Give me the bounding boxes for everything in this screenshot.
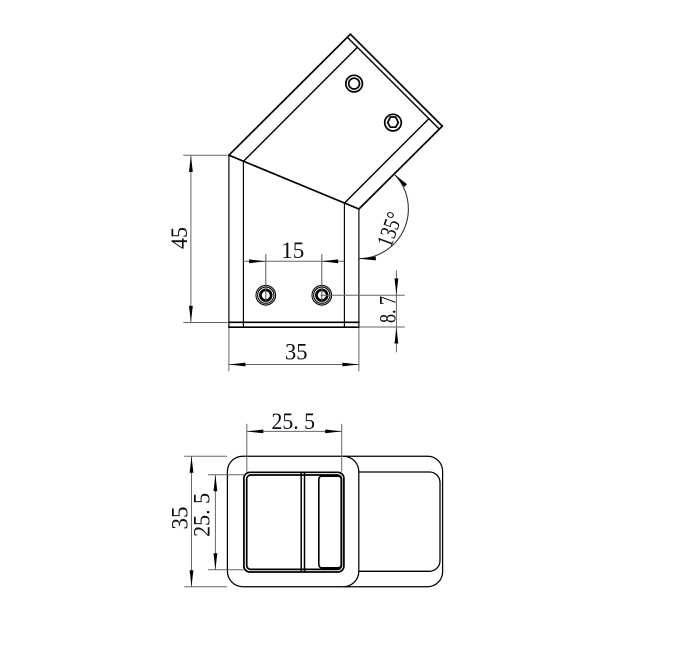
svg-text:8. 7: 8. 7 [375, 296, 400, 323]
svg-text:45: 45 [167, 227, 192, 249]
svg-text:15: 15 [281, 238, 304, 263]
svg-text:35: 35 [285, 340, 308, 365]
svg-text:35: 35 [167, 507, 192, 530]
svg-text:25. 5: 25. 5 [190, 493, 215, 537]
svg-text:25. 5: 25. 5 [271, 409, 315, 434]
